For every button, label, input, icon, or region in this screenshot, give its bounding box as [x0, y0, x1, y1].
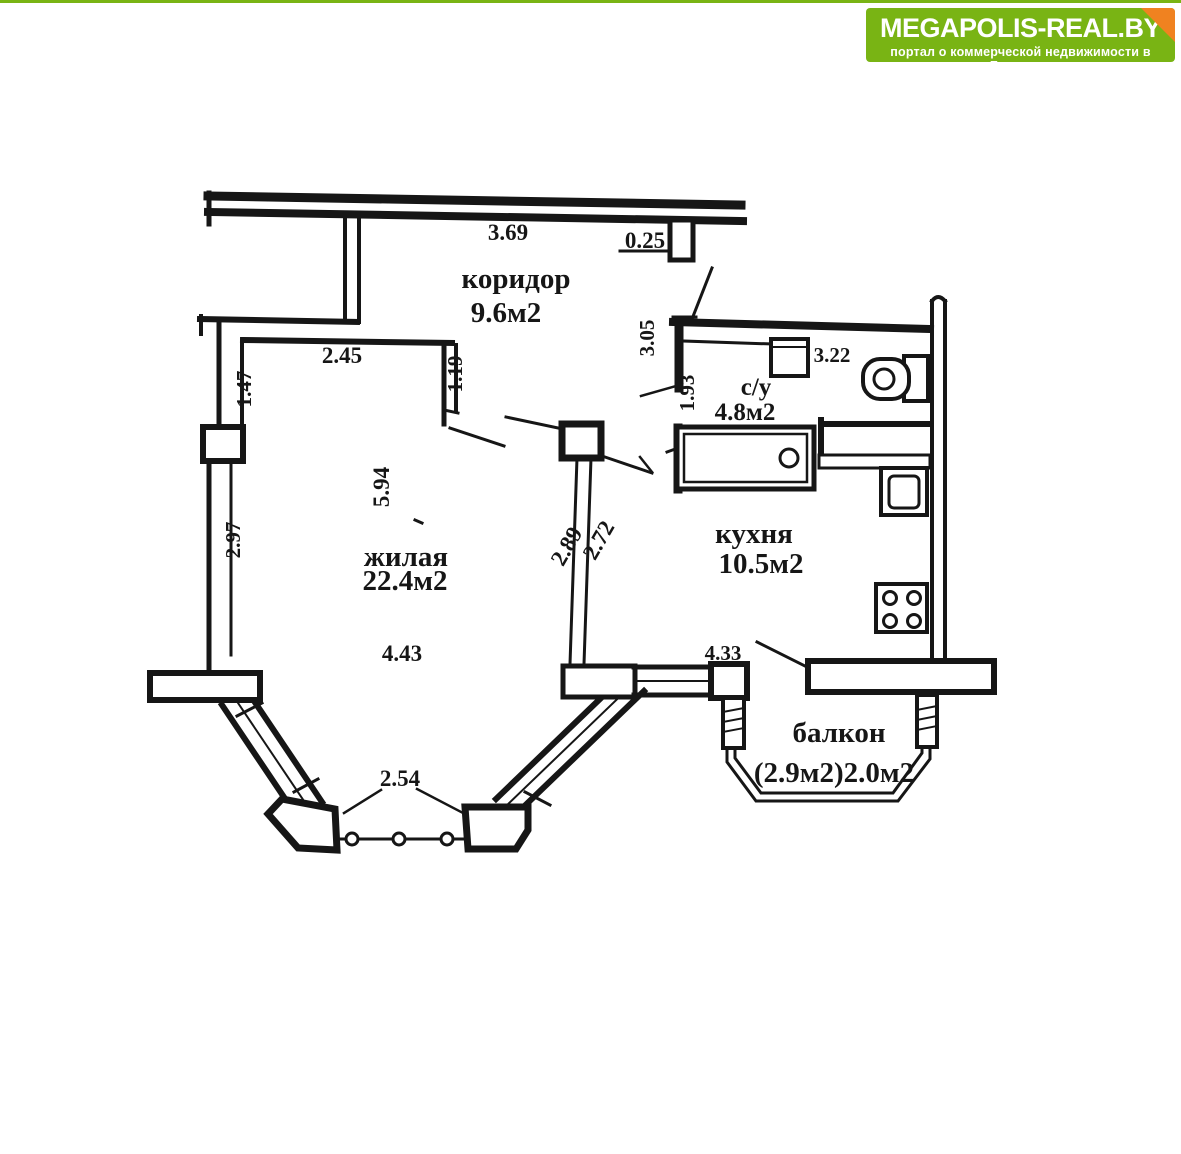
bathtub-outer: [677, 427, 814, 489]
door-leader: [641, 386, 676, 396]
wall-cap: [932, 297, 945, 301]
door-leader: [692, 268, 712, 319]
dim-corridor-length: 3.69: [488, 220, 528, 245]
floorplan-page: коридор 9.6м2 с/у 4.8м2 жилая 22.4м2 кух…: [0, 0, 1181, 1154]
wall-bar: [150, 673, 260, 700]
dim-entry-width: 2.45: [322, 343, 362, 368]
wall-pier: [465, 807, 528, 849]
wall-segment: [208, 196, 741, 205]
dim-bathroom-width: 3.22: [814, 343, 851, 367]
wall-pier: [268, 799, 337, 850]
window-post: [393, 833, 405, 845]
room-area-living: 22.4м2: [362, 565, 447, 597]
wall-sill-block: [563, 666, 635, 697]
window-post: [346, 833, 358, 845]
wall-segment: [684, 341, 772, 344]
dim-living-wall-lower: 2.97: [221, 522, 245, 559]
dim-living-length: 5.94: [369, 466, 394, 507]
right-exterior-wall: [932, 297, 945, 661]
top-exterior-wall: [208, 193, 743, 224]
wall-segment: [200, 319, 357, 322]
room-area-balcony: (2.9м2)2.0м2: [754, 757, 914, 789]
room-name-corridor: коридор: [462, 263, 571, 295]
room-name-bathroom: с/у: [741, 374, 772, 401]
wall-pillar: [562, 424, 601, 458]
window-post: [441, 833, 453, 845]
dim-living-wall-upper: 1.47: [232, 371, 256, 408]
wash-sink: [771, 339, 808, 376]
dimension-leader: [417, 789, 463, 813]
bay-window: [150, 664, 747, 850]
window-glazing: [504, 681, 636, 808]
stove: [876, 584, 927, 632]
wall-niche: [670, 220, 693, 260]
wall-pier: [711, 664, 747, 698]
door-leader: [450, 428, 504, 446]
toilet-bowl: [863, 359, 909, 399]
plan-labels: коридор 9.6м2 с/у 4.8м2 жилая 22.4м2 кух…: [221, 220, 914, 791]
stray-mark: [415, 520, 422, 523]
logo-subtitle: портал о коммерческой недвижимости в Бел…: [866, 45, 1175, 62]
dim-bathroom-door: 1.93: [675, 375, 699, 412]
megapolis-logo: MEGAPOLIS-REAL.BY портал о коммерческой …: [866, 8, 1175, 62]
sink-body: [771, 339, 808, 376]
room-area-kitchen: 10.5м2: [718, 548, 803, 580]
dim-divider-b: 2.72: [578, 517, 620, 564]
corridor-partition-wall: [345, 219, 359, 322]
room-area-corridor: 9.6м2: [471, 297, 542, 329]
wall-segment: [208, 212, 743, 221]
dim-bathroom-length: 3.05: [635, 320, 659, 357]
toilet: [863, 356, 928, 401]
logo-corner-fold-icon: [1141, 8, 1175, 42]
door-leader: [506, 417, 563, 429]
dim-entry-depth: 1.19: [443, 356, 467, 393]
dim-living-width: 4.43: [382, 641, 422, 666]
living-room-north-wall: [200, 316, 452, 343]
dim-bay-window: 2.54: [380, 766, 421, 791]
window-glazing: [512, 691, 644, 818]
balcony-post: [917, 695, 937, 747]
room-name-kitchen: кухня: [715, 518, 793, 550]
room-name-balcony: балкон: [792, 717, 885, 749]
balcony-wall-bar: [808, 661, 994, 692]
wall-segment: [584, 458, 591, 664]
dimension-leader: [757, 642, 809, 668]
wall-segment: [673, 322, 930, 329]
floorplan-drawing: коридор 9.6м2 с/у 4.8м2 жилая 22.4м2 кух…: [0, 0, 1181, 1154]
room-area-bathroom: 4.8м2: [715, 399, 776, 426]
bathtub: [677, 427, 814, 489]
window-glazing: [234, 697, 310, 810]
balcony-post: [723, 698, 744, 748]
dim-kitchen-width: 4.33: [705, 641, 742, 665]
logo-title: MEGAPOLIS-REAL.BY: [866, 15, 1175, 42]
kitchen-sink: [881, 468, 927, 515]
dimension-leader: [344, 790, 381, 813]
wall-pier: [203, 427, 243, 461]
top-green-strip: [0, 0, 1181, 3]
dim-wall-niche: 0.25: [625, 228, 665, 253]
